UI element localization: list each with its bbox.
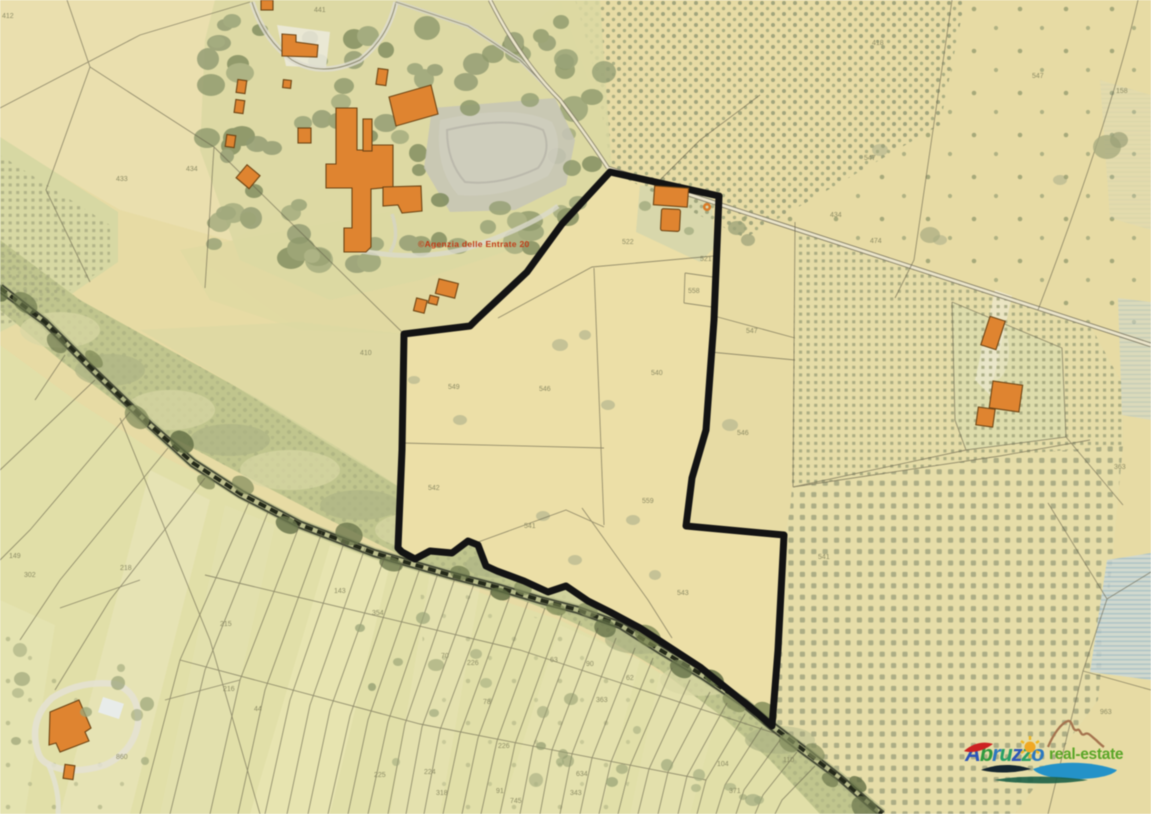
svg-text:547: 547 [864, 155, 876, 162]
svg-text:558: 558 [688, 288, 700, 295]
svg-text:216: 216 [223, 686, 235, 693]
svg-text:521: 521 [700, 256, 712, 263]
svg-text:546: 546 [737, 430, 749, 437]
svg-text:143: 143 [334, 588, 346, 595]
svg-text:433: 433 [116, 176, 128, 183]
svg-text:©Agenzia delle Entrate 20: ©Agenzia delle Entrate 20 [418, 239, 530, 249]
svg-text:474: 474 [870, 238, 882, 245]
svg-text:540: 540 [651, 370, 663, 377]
svg-text:434: 434 [830, 212, 842, 219]
svg-text:70: 70 [441, 653, 449, 660]
svg-text:149: 149 [9, 553, 21, 560]
svg-text:91: 91 [496, 788, 504, 795]
svg-text:63: 63 [550, 657, 558, 664]
svg-text:860: 860 [116, 754, 128, 761]
svg-text:522: 522 [622, 239, 634, 246]
svg-text:226: 226 [498, 743, 510, 750]
svg-text:62: 62 [626, 675, 634, 682]
svg-text:634: 634 [576, 771, 588, 778]
svg-text:546: 546 [539, 386, 551, 393]
svg-text:410: 410 [360, 350, 372, 357]
svg-text:90: 90 [586, 661, 594, 668]
svg-text:963: 963 [1100, 709, 1112, 716]
svg-text:224: 224 [424, 769, 436, 776]
svg-text:158: 158 [1116, 88, 1128, 95]
svg-text:547: 547 [746, 328, 758, 335]
svg-text:104: 104 [717, 761, 729, 768]
svg-text:226: 226 [467, 660, 479, 667]
svg-text:559: 559 [642, 498, 654, 505]
svg-text:412: 412 [2, 13, 14, 20]
svg-text:371: 371 [729, 788, 741, 795]
svg-text:549: 549 [448, 384, 460, 391]
svg-text:215: 215 [220, 621, 232, 628]
svg-text:745: 745 [510, 798, 522, 805]
svg-text:real-estate: real-estate [1049, 746, 1124, 763]
svg-text:78: 78 [483, 699, 491, 706]
svg-text:547: 547 [1032, 73, 1044, 80]
svg-text:434: 434 [186, 166, 198, 173]
svg-text:302: 302 [24, 572, 36, 579]
svg-text:541: 541 [524, 523, 536, 530]
svg-text:542: 542 [428, 485, 440, 492]
svg-text:225: 225 [374, 772, 386, 779]
svg-text:218: 218 [120, 565, 132, 572]
svg-text:541: 541 [818, 554, 830, 561]
svg-text:363: 363 [596, 697, 608, 704]
svg-text:418: 418 [872, 40, 884, 47]
svg-text:318: 318 [436, 790, 448, 797]
svg-text:44: 44 [254, 706, 262, 713]
svg-text:354: 354 [372, 610, 384, 617]
svg-text:543: 543 [677, 590, 689, 597]
svg-text:441: 441 [314, 7, 326, 14]
svg-text:343: 343 [570, 790, 582, 797]
svg-text:110: 110 [783, 757, 794, 764]
svg-text:363: 363 [1114, 464, 1126, 471]
